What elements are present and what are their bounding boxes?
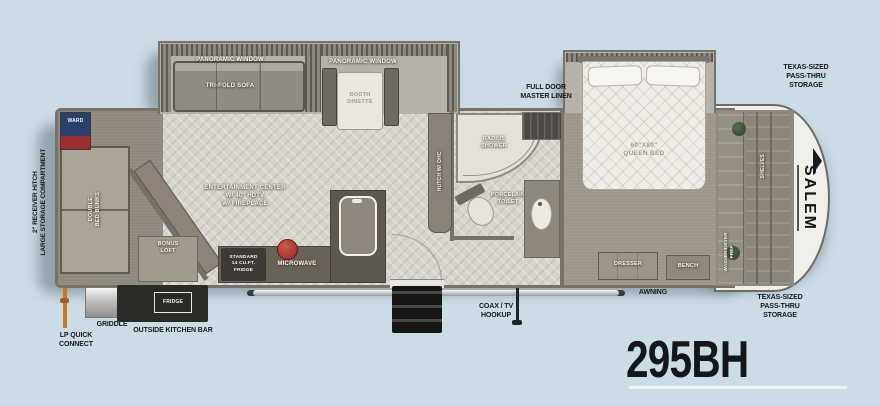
bath-bottom-wall	[450, 236, 514, 240]
standard-fridge-label: STANDARD14 CU.FT.FRIDGE	[229, 255, 257, 274]
slideout-curtain	[161, 44, 171, 112]
radius-shower-label: RADIUSSHOWER	[468, 136, 520, 150]
griddle	[85, 287, 118, 318]
outside-kitchen-bar-label: OUTSIDE KITCHEN BAR	[111, 327, 235, 336]
lp-quick-connect-line	[63, 288, 67, 328]
brand-logo-text: SALEM	[801, 165, 817, 231]
microwave-label: MICROWAVE	[258, 261, 336, 269]
awning-label: AWNING	[624, 289, 682, 298]
slideout-curtain	[447, 44, 457, 112]
coax-hookup-label: COAX / TVHOOKUP	[456, 303, 536, 321]
dinette-bench	[384, 68, 399, 126]
kitchen-sink	[339, 196, 377, 256]
shelf-divider	[756, 112, 758, 284]
lp-quick-connect-label: LP QUICKCONNECT	[47, 332, 105, 350]
dresser-label: DRESSER	[598, 261, 658, 268]
linen-closet	[522, 112, 562, 140]
faucet-icon	[352, 199, 362, 203]
passthru-storage-label-top: TEXAS-SIZEDPASS-THRUSTORAGE	[764, 64, 848, 90]
plant-icon	[732, 122, 746, 136]
dinette-bench	[322, 68, 337, 126]
master-linen-label: FULL DOORMASTER LINEN	[504, 84, 588, 102]
lp-connector	[60, 298, 69, 303]
double-bed-bunks-label: DOUBLEBED BUNKS	[88, 164, 102, 254]
passthru-storage-label-bottom: TEXAS-SIZEDPASS-THRUSTORAGE	[738, 294, 822, 320]
kettle-icon	[277, 239, 298, 260]
wardrobe-box: WARD	[60, 112, 91, 150]
coax-connector	[512, 320, 522, 325]
tri-fold-sofa-label: TRI-FOLD SOFA	[170, 83, 290, 91]
panoramic-window-label-1: PANORAMIC WINDOW	[170, 57, 290, 65]
model-number: 295BH	[626, 334, 748, 386]
floorplan-canvas: SHELVES WASHER/DRYERPREP SALEM BOOTHDINE…	[0, 0, 879, 406]
washer-dryer-prep-label: WASHER/DRYERPREP	[723, 217, 735, 287]
wardrobe-box-red	[61, 136, 90, 149]
booth-dinette-label: BOOTHDINETTE	[338, 92, 382, 106]
entertainment-label: ENTERTAINMENT CENTERW/ 40" HDTVW/ FIREPL…	[186, 185, 304, 208]
hitch-storage-label: 2" RECEIVER HITCHLARGE STORAGE COMPARTME…	[32, 142, 48, 262]
pillow	[588, 65, 643, 87]
slideout-curtain	[305, 44, 321, 112]
panoramic-window-label-2: PANORAMIC WINDOW	[303, 59, 423, 67]
pillow	[646, 65, 701, 87]
bonus-loft-label: BONUSLOFT	[138, 241, 198, 255]
outside-fridge: FRIDGE	[154, 292, 192, 313]
logo-subtext-bar	[797, 165, 800, 231]
vanity-faucet-icon	[538, 202, 542, 206]
outside-fridge-label: FRIDGE	[163, 299, 183, 306]
shelves-label: SHELVES	[760, 141, 767, 191]
shelf-divider	[770, 112, 772, 284]
queen-bed-label: 60"X80"QUEEN BED	[594, 142, 694, 159]
entry-steps	[392, 286, 442, 333]
wardrobe-label: WARD	[61, 118, 90, 125]
hutch-label: HUTCH W/ OHC	[437, 116, 444, 226]
brand-logo-block: SALEM	[790, 138, 824, 258]
bench-label: BENCH	[666, 263, 710, 270]
model-underline	[629, 386, 847, 389]
storage-shelves	[746, 112, 790, 284]
